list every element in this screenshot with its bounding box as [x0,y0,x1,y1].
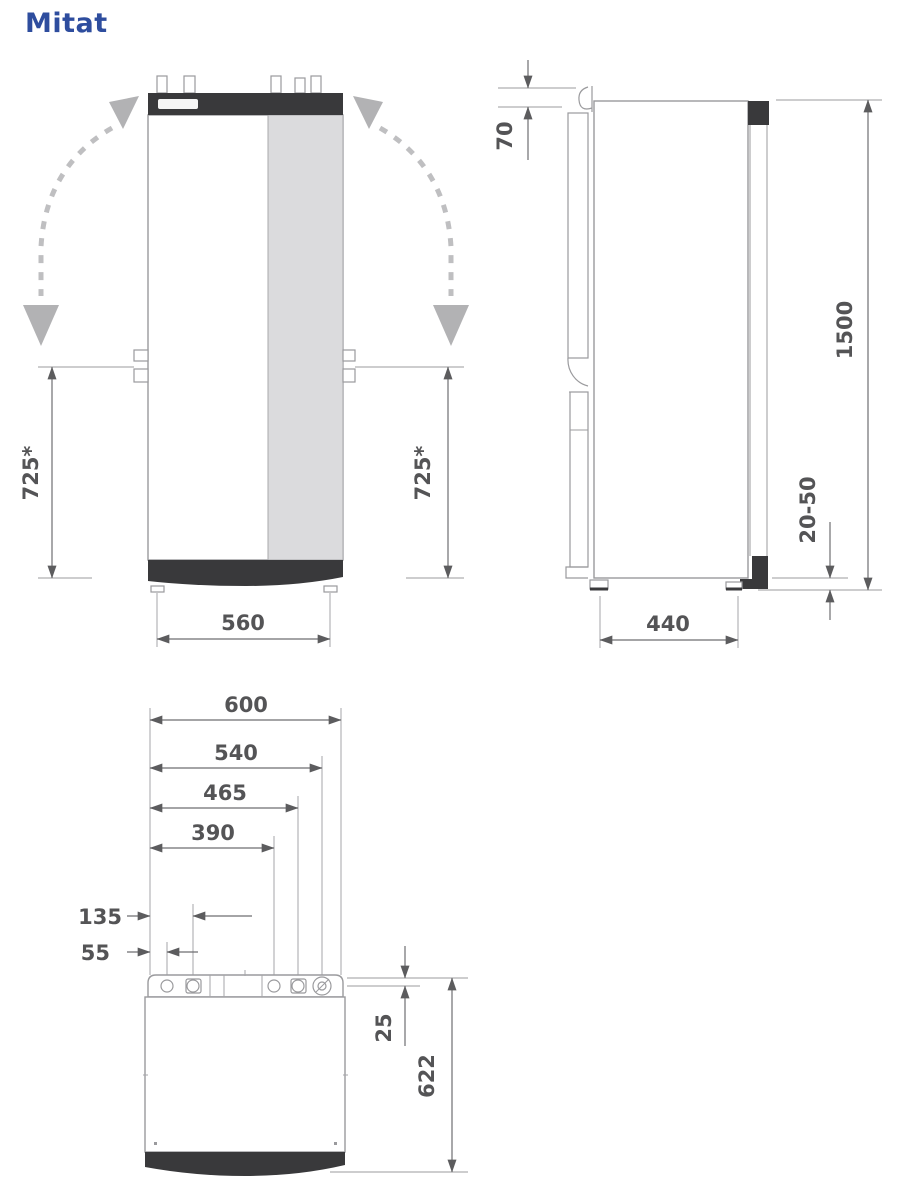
brand-logo [158,99,198,109]
pipe-stub [311,76,321,93]
dim-label-465: 465 [203,781,247,805]
dim-label-25: 25 [372,1013,396,1042]
dim-label-390: 390 [191,821,235,845]
side-top-hook [579,86,592,112]
pipe-connection [268,980,280,992]
dim-label-height-right: 725* [411,446,435,501]
side-back-bracket-lower [570,392,588,567]
pipe-connection [187,980,199,992]
dim-label-depth: 440 [646,612,690,636]
side-unit-body [594,101,748,578]
front-foot-left [151,586,164,592]
pipe-connection [161,980,173,992]
dimensions-page: Mitat [0,0,899,1200]
side-view: 70 1500 20-50 440 [493,60,882,648]
side-back-curl [568,358,588,386]
front-base-plinth [148,560,343,586]
bracket-right-upper [343,350,355,361]
swing-end-arrow-icon [433,305,469,346]
dim-label-height-left: 725* [19,446,43,501]
front-view: 725* 725* 560 [19,76,469,647]
swing-arc [41,128,112,296]
front-right-panel [268,115,343,560]
dim-label-total-depth: 622 [415,1054,439,1098]
swing-end-arrow-icon [23,305,59,346]
side-back-bracket-upper [568,113,588,358]
door-swing-left [23,96,139,346]
swing-start-arrow-icon [353,96,383,129]
pipe-stub [295,78,305,93]
dim-label-bracket: 70 [493,121,517,150]
front-foot-right [324,586,337,592]
door-swing-right [353,96,469,346]
side-top-panel-edge [748,101,769,125]
top-view: 600 540 465 390 135 55 25 622 [78,693,468,1176]
pipe-stub [157,76,167,93]
corner-mark [154,1142,157,1145]
pipe-connection [292,980,304,992]
top-unit-body [145,997,345,1152]
bracket-left-upper [134,350,148,361]
dimension-drawing: 725* 725* 560 [0,0,899,1200]
side-back-bottom-step [566,567,588,578]
pipe-stub [271,76,281,93]
dim-label-total-width: 600 [224,693,268,717]
bracket-right-lower [343,369,355,382]
bracket-left-lower [134,369,148,382]
front-pipe-stubs [157,76,321,93]
corner-mark [334,1142,337,1145]
dim-label-width: 560 [221,611,265,635]
swing-start-arrow-icon [109,96,139,129]
dim-label-135: 135 [78,905,122,929]
dim-label-total-height: 1500 [833,301,857,359]
dim-label-feet-adjust: 20-50 [796,476,820,543]
dim-label-55: 55 [81,941,110,965]
swing-arc [380,128,451,296]
top-front-panel [145,1152,345,1176]
dim-label-540: 540 [214,741,258,765]
pipe-stub [184,76,195,93]
